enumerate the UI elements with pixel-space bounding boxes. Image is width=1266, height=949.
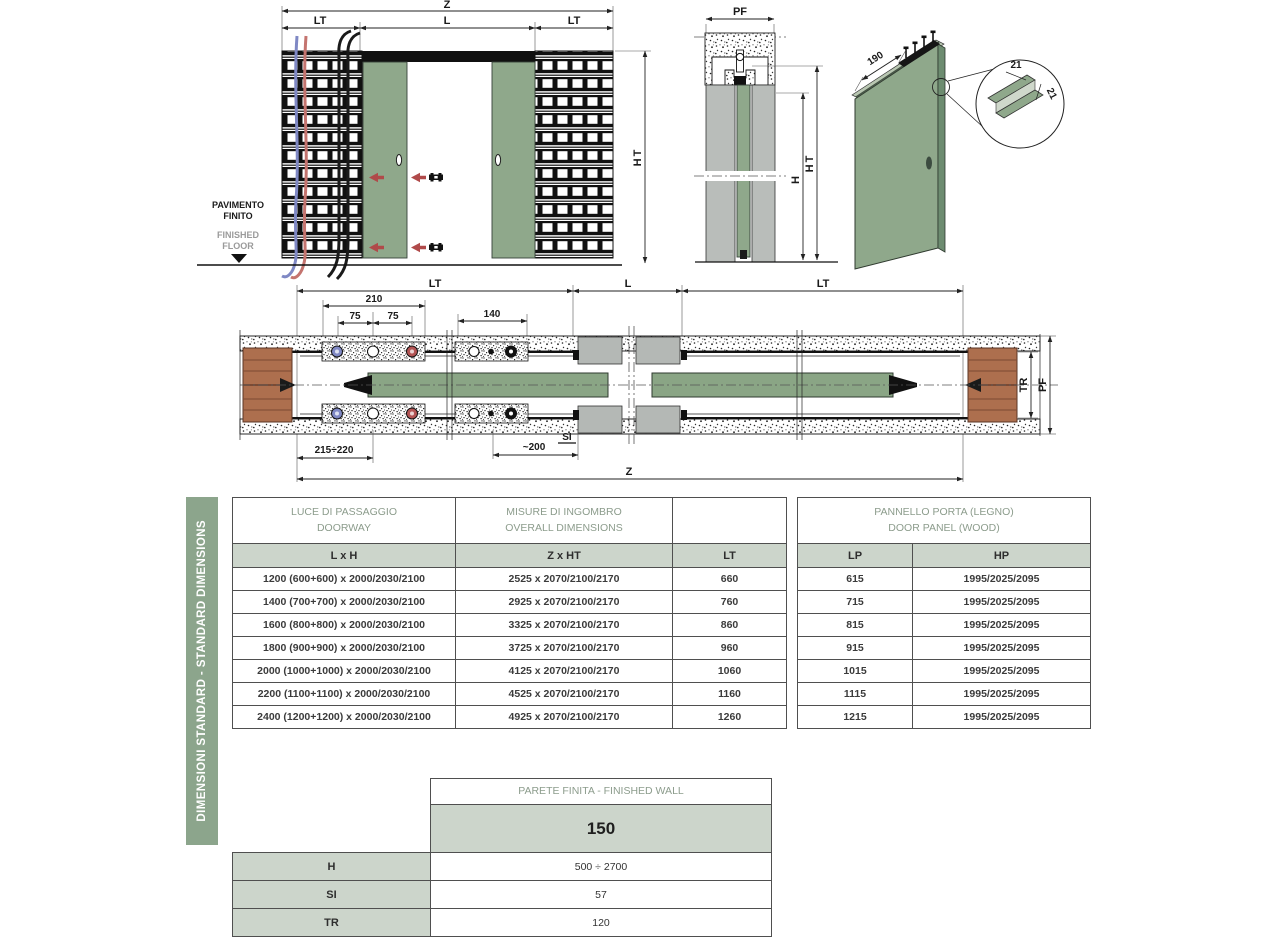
header-track-beam [362,51,535,62]
floor-level-marker-icon [231,254,247,263]
table-header-row: PANNELLO PORTA (LEGNO) DOOR PANEL (WOOD) [798,498,1091,544]
cell: 1215 [798,706,913,729]
dim-label-lt: LT [314,15,327,27]
cell: 1160 [673,683,787,706]
cell: 2000 (1000+1000) x 2000/2030/2100 [233,660,456,683]
cell: 2525 x 2070/2100/2170 [456,568,673,591]
left-pocket-wall [282,51,362,258]
dim-label-lt: LT [429,278,442,290]
floor-guide [740,250,747,259]
cell: 760 [673,591,787,614]
row-label: H [233,853,431,881]
overall-group-header: MISURE DI INGOMBRO OVERALL DIMENSIONS [456,498,673,544]
door-top-bracket [734,76,746,85]
cell: 715 [798,591,913,614]
dim-label-215-220: 215÷220 [315,445,354,456]
door-stop-icon [429,173,443,252]
technical-drawings: Z LT L LT [0,0,1266,500]
table-row: 2000 (1000+1000) x 2000/2030/2100 4125 x… [233,660,787,683]
datasheet-page: Z LT L LT [0,0,1266,949]
right-door-handle [495,155,500,166]
dim-label-l: L [625,278,632,290]
finished-wall-header: PARETE FINITA - FINISHED WALL [431,779,772,805]
row-label: TR [233,909,431,937]
cell: 1995/2025/2095 [913,568,1091,591]
cell: 4925 x 2070/2100/2170 [456,706,673,729]
cell: 915 [798,637,913,660]
cell: 500 ÷ 2700 [431,853,772,881]
standard-dimensions-table: LUCE DI PASSAGGIO DOORWAY MISURE DI INGO… [232,497,787,729]
table-row: 915 1995/2025/2095 [798,637,1091,660]
doorway-wall-block [578,337,622,364]
table-row: H 500 ÷ 2700 [233,853,772,881]
dim-label-ht: HT [632,148,644,167]
finished-wall-table: PARETE FINITA - FINISHED WALL 150 H 500 … [232,778,772,937]
dim-label-lt: LT [568,15,581,27]
dim-label-140: 140 [484,309,501,320]
column-header: HP [913,544,1091,568]
table-row: 715 1995/2025/2095 [798,591,1091,614]
dim-label-ht: HT [804,154,816,173]
cell: 1200 (600+600) x 2000/2030/2100 [233,568,456,591]
dim-label-200: ~200 [523,442,546,453]
door-3d-view: 190 21 21 [852,31,1064,270]
cell: 815 [798,614,913,637]
door-panel-table: PANNELLO PORTA (LEGNO) DOOR PANEL (WOOD)… [797,497,1091,729]
dim-label-z: Z [444,0,451,11]
cell: 1995/2025/2095 [913,637,1091,660]
wall-thickness-value: 150 [431,805,772,853]
cell: 1995/2025/2095 [913,591,1091,614]
door-side-edge [938,44,945,252]
dim-label-tr: TR [1018,378,1030,393]
table-row: 1215 1995/2025/2095 [798,706,1091,729]
panel-group-header: PANNELLO PORTA (LEGNO) DOOR PANEL (WOOD) [798,498,1091,544]
floor-label-en: FINISHED [217,230,260,240]
dim-label-pf: PF [1037,378,1049,392]
table-row: SI 57 [233,881,772,909]
cell: 1115 [798,683,913,706]
floor-label-it: FINITO [223,211,252,221]
cell: 1015 [798,660,913,683]
left-door-handle [396,155,401,166]
dim-label-z: Z [626,466,633,478]
right-pocket-wall [535,51,613,258]
floor-label-it: PAVIMENTO [212,200,264,210]
cell: 2200 (1100+1100) x 2000/2030/2100 [233,683,456,706]
cell: 3725 x 2070/2100/2170 [456,637,673,660]
table-row: 1015 1995/2025/2095 [798,660,1091,683]
dim-label-75: 75 [349,311,361,322]
table-row: 615 1995/2025/2095 [798,568,1091,591]
table-row: 2200 (1100+1100) x 2000/2030/2100 4525 x… [233,683,787,706]
cell: 660 [673,568,787,591]
section-title: DIMENSIONI STANDARD - STANDARD DIMENSION… [196,520,208,822]
jamb-left [243,348,296,422]
dim-label-210: 210 [366,294,383,305]
table-row: 2400 (1200+1200) x 2000/2030/2100 4925 x… [233,706,787,729]
cell: 3325 x 2070/2100/2170 [456,614,673,637]
dim-label-pf: PF [733,6,747,18]
table-header-row: LUCE DI PASSAGGIO DOORWAY MISURE DI INGO… [233,498,787,544]
table-row: 1400 (700+700) x 2000/2030/2100 2925 x 2… [233,591,787,614]
table-row: 1200 (600+600) x 2000/2030/2100 2525 x 2… [233,568,787,591]
cell: 615 [798,568,913,591]
cell: 1995/2025/2095 [913,683,1091,706]
cell: 57 [431,881,772,909]
section-title-bar: DIMENSIONI STANDARD - STANDARD DIMENSION… [186,497,218,845]
empty-header [673,498,787,544]
dim-label-lt: LT [817,278,830,290]
doorway-wall-block [578,406,622,433]
table-subheader-row: LP HP [798,544,1091,568]
track-roller [736,53,743,60]
dim-label-75: 75 [387,311,399,322]
dim-label-h: H [790,176,802,184]
door-front-face [855,44,938,269]
column-header: LT [673,544,787,568]
cell: 1600 (800+800) x 2000/2030/2100 [233,614,456,637]
spacer-cell [233,805,431,853]
cell: 1995/2025/2095 [913,660,1091,683]
table-subheader-row: L x H Z x HT LT [233,544,787,568]
dim-label-190: 190 [866,50,886,69]
plan-section-view: LT L LT 210 75 75 140 [240,278,1058,482]
table-row: 1800 (900+900) x 2000/2030/2100 3725 x 2… [233,637,787,660]
cell: 120 [431,909,772,937]
floor-label-en: FLOOR [222,241,254,251]
front-elevation-view: Z LT L LT [197,0,651,279]
cell: 4125 x 2070/2100/2170 [456,660,673,683]
dim-label-si: SI [562,432,572,443]
cell: 960 [673,637,787,660]
cell: 4525 x 2070/2100/2170 [456,683,673,706]
column-header: L x H [233,544,456,568]
cell: 1995/2025/2095 [913,706,1091,729]
cell: 1260 [673,706,787,729]
cell: 1995/2025/2095 [913,614,1091,637]
door-handle [926,157,932,170]
cell: 1400 (700+700) x 2000/2030/2100 [233,591,456,614]
spacer-cell [233,779,431,805]
doorway-wall-block [636,406,680,433]
doorway-wall-block [636,337,680,364]
table-row: 1115 1995/2025/2095 [798,683,1091,706]
table-row: TR 120 [233,909,772,937]
row-label: SI [233,881,431,909]
column-header: Z x HT [456,544,673,568]
table-row: 1600 (800+800) x 2000/2030/2100 3325 x 2… [233,614,787,637]
column-header: LP [798,544,913,568]
cell: 860 [673,614,787,637]
cell: 2400 (1200+1200) x 2000/2030/2100 [233,706,456,729]
cell: 2925 x 2070/2100/2170 [456,591,673,614]
table-row: 815 1995/2025/2095 [798,614,1091,637]
doorway-group-header: LUCE DI PASSAGGIO DOORWAY [233,498,456,544]
cell: 1060 [673,660,787,683]
vertical-section-view: PF H HT [694,6,838,262]
dim-label-l: L [444,15,451,27]
dim-label-21: 21 [1010,60,1022,71]
cell: 1800 (900+900) x 2000/2030/2100 [233,637,456,660]
